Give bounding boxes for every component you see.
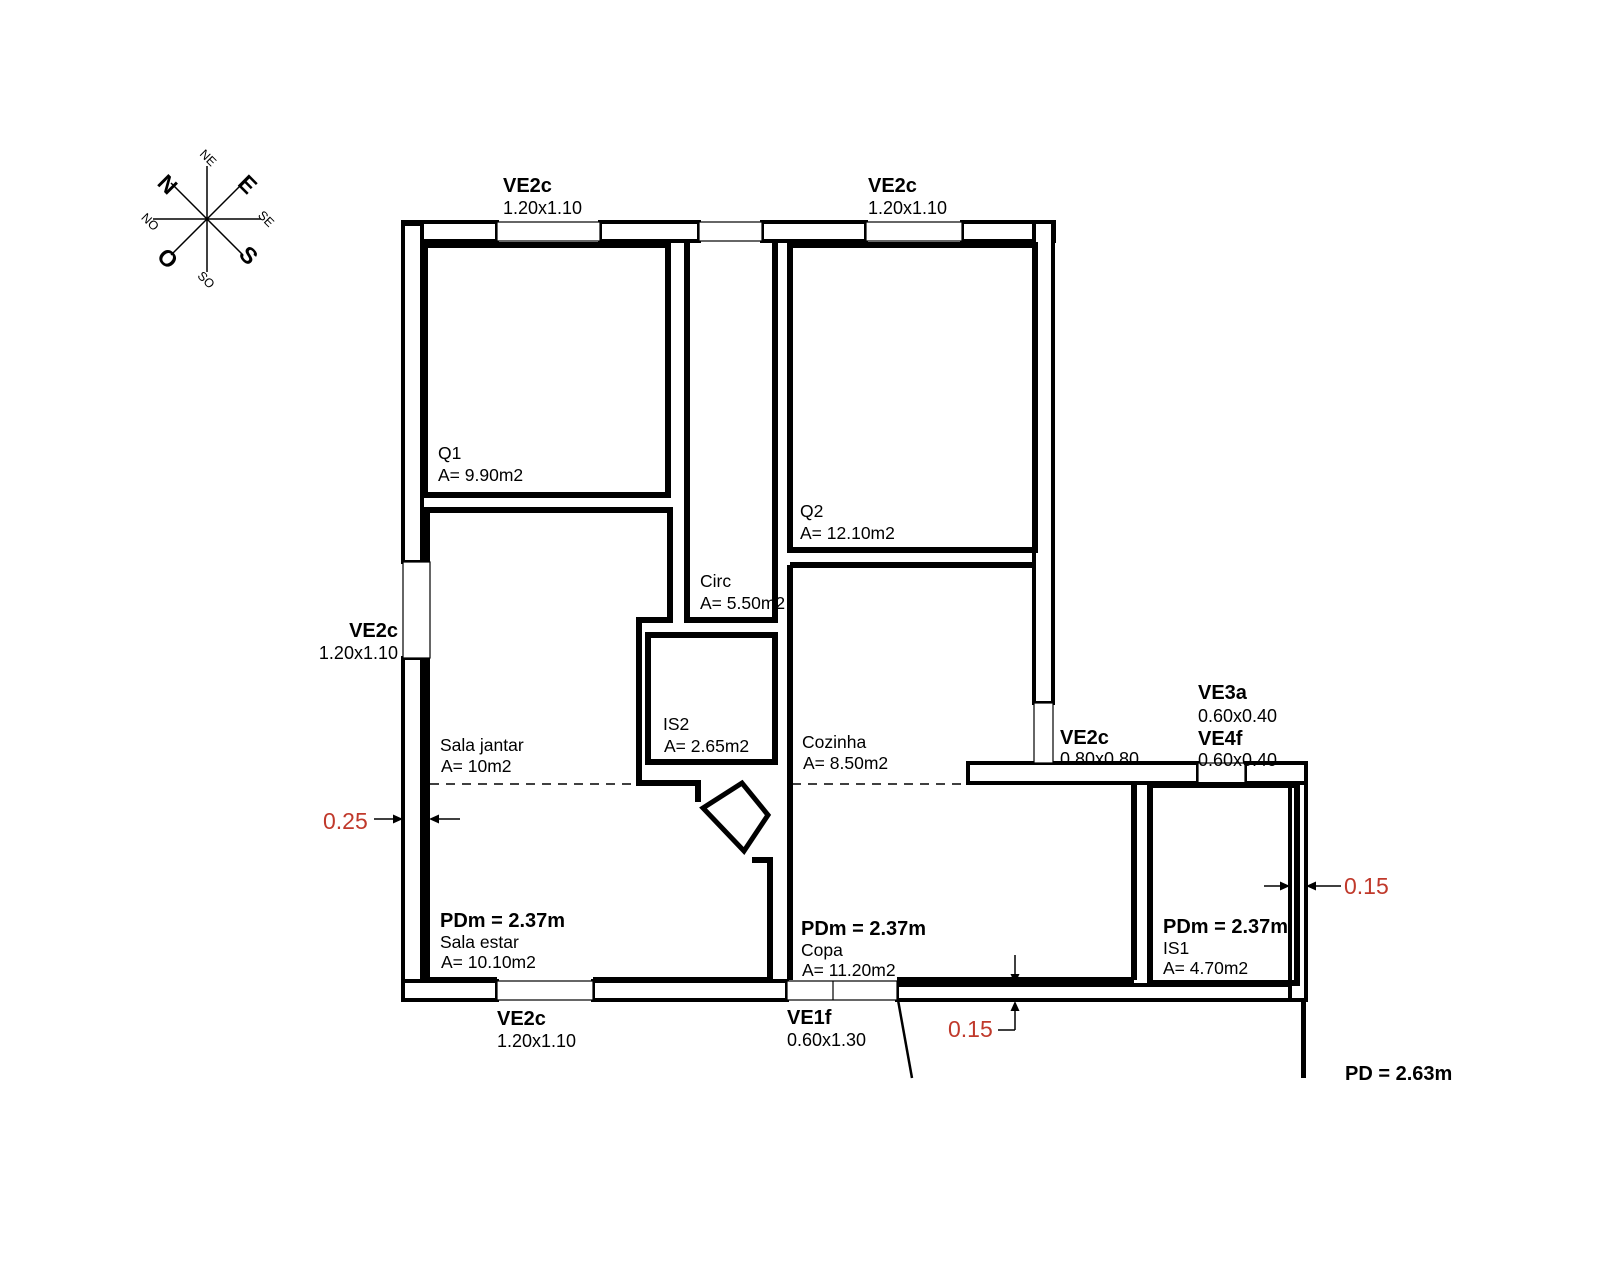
window-east-ve2c [1034, 703, 1053, 763]
room-is1-pdm: PDm = 2.37m [1163, 916, 1288, 938]
room-is2-name: IS2 [663, 714, 689, 734]
door-leaf-icon [703, 783, 768, 851]
window-openings [403, 222, 1245, 1000]
room-q2-name: Q2 [800, 501, 823, 521]
room-copa-pdm: PDm = 2.37m [801, 918, 926, 940]
window-ve1f-code: VE1f [787, 1007, 832, 1029]
room-q1-area: A= 9.90m2 [438, 465, 523, 485]
window-top-2-size: 1.20x1.10 [868, 198, 947, 218]
room-sala-outline-c [593, 860, 770, 980]
compass-no-label: NO [138, 210, 161, 233]
window-left-size: 1.20x1.10 [319, 643, 398, 663]
compass-ne-label: NE [197, 147, 219, 169]
floor-plan-svg: 0.25 0.15 0.15 VE2c 1.20x1.10 VE2c 1.20x… [0, 0, 1600, 1280]
floor-plan-page: 0.25 0.15 0.15 VE2c 1.20x1.10 VE2c 1.20x… [0, 0, 1600, 1280]
room-is1-area: A= 4.70m2 [1163, 958, 1248, 978]
window-ve4f-size: 0.60x0.40 [1198, 750, 1277, 770]
wall-left-lower [403, 658, 422, 1000]
window-east-size: 0.80x0.80 [1060, 749, 1139, 769]
window-left-ve2c [403, 562, 430, 658]
compass-e-label: E [233, 170, 262, 199]
wall-bottom-2 [593, 981, 787, 1000]
window-bottom-code: VE2c [497, 1008, 546, 1030]
window-ve1f-size: 0.60x1.30 [787, 1030, 866, 1050]
window-bottom-size: 1.20x1.10 [497, 1031, 576, 1051]
dim-left-value: 0.25 [323, 808, 368, 834]
window-top-circ [699, 222, 762, 241]
window-left-code: VE2c [349, 620, 398, 642]
room-sala-jantar-area: A= 10m2 [441, 756, 512, 776]
room-cozinha-name: Cozinha [802, 732, 866, 752]
room-q2-area: A= 12.10m2 [800, 523, 895, 543]
window-ve3a-size: 0.60x0.40 [1198, 706, 1277, 726]
room-sala-estar-pdm: PDm = 2.37m [440, 910, 565, 932]
window-top-1-ve2c [497, 222, 600, 241]
wall-bottom-1 [403, 981, 497, 1000]
window-top-1-code: VE2c [503, 175, 552, 197]
ceiling-height-pd: PD = 2.63m [1345, 1063, 1452, 1085]
wall-top-3 [762, 222, 866, 241]
exterior-door-leaf-line [898, 1000, 912, 1078]
compass-so-label: SO [195, 269, 218, 292]
compass-n-label: N [153, 169, 183, 199]
room-copa-name: Copa [801, 940, 843, 960]
window-bottom-ve2c [497, 981, 593, 1000]
window-top-2-ve2c [866, 222, 962, 241]
wall-bottom-3 [897, 985, 1306, 1000]
wall-left-upper [403, 224, 422, 562]
room-q2-outline [790, 245, 1035, 550]
dim-left-arrow2-icon [429, 815, 439, 824]
compass-s-label: S [234, 241, 263, 270]
room-is1-name: IS1 [1163, 938, 1189, 958]
window-top-2-code: VE2c [868, 175, 917, 197]
room-q1-outline [425, 245, 668, 495]
compass-rose: N E S O NE SE SO NO [138, 147, 276, 292]
wall-top-2 [600, 222, 699, 241]
room-circ-name: Circ [700, 571, 731, 591]
compass-se-label: SE [255, 208, 277, 230]
room-circ-area: A= 5.50m2 [700, 593, 785, 613]
window-top-1-size: 1.20x1.10 [503, 198, 582, 218]
room-copa-area: A= 11.20m2 [802, 960, 896, 980]
window-ve3a-code: VE3a [1198, 682, 1248, 704]
room-sala-jantar-name: Sala jantar [440, 735, 524, 755]
dim-bottom-value: 0.15 [948, 1016, 993, 1042]
window-ve4f-code: VE4f [1198, 728, 1243, 750]
room-circ-outline [687, 242, 775, 620]
window-ve1f [787, 981, 897, 1000]
dim-bottom-arrow-up-icon [1011, 1001, 1020, 1011]
window-east-code: VE2c [1060, 727, 1109, 749]
room-q1-name: Q1 [438, 443, 461, 463]
wall-extension-line [1301, 1000, 1306, 1078]
room-cozinha-area: A= 8.50m2 [803, 753, 888, 773]
room-sala-estar-name: Sala estar [440, 932, 519, 952]
room-outlines [425, 242, 1297, 983]
room-sala-estar-area: A= 10.10m2 [441, 952, 536, 972]
dim-right-value: 0.15 [1344, 873, 1389, 899]
room-is2-area: A= 2.65m2 [664, 736, 749, 756]
